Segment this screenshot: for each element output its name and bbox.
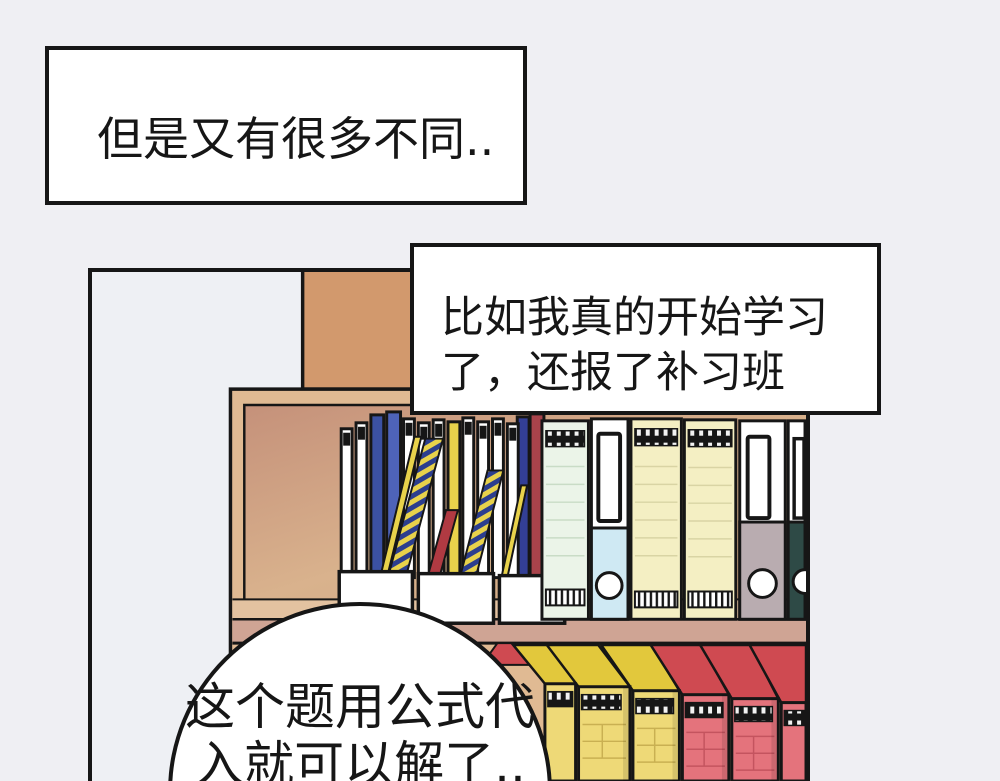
speech-box-line-1: 比如我真的开始学习	[441, 291, 877, 346]
speech-bubble-line-2: 入就可以解了..	[172, 736, 548, 781]
speech-bubble-line-1: 这个题用公式代	[172, 678, 548, 736]
speech-box: 比如我真的开始学习 了，还报了补习班	[410, 243, 881, 415]
comic-page: { "comic": { "narration_box_1": { "text"…	[0, 0, 1000, 781]
barcode	[635, 591, 678, 607]
thin-books-group	[339, 412, 564, 623]
finger-hole	[793, 570, 806, 594]
barcode	[688, 591, 732, 607]
binder-pale-yellow-a	[631, 419, 681, 619]
binder-label	[635, 429, 678, 446]
finger-hole	[596, 573, 622, 599]
barcode	[546, 590, 585, 606]
binder-label	[546, 431, 585, 447]
narration-box: 但是又有很多不同..	[45, 46, 527, 205]
binder-front-red-3	[781, 703, 806, 781]
binder-pale-yellow-b	[684, 420, 735, 619]
binder-front-yellow-2	[579, 687, 630, 781]
binder-mint	[542, 421, 588, 619]
speech-box-line-2: 了，还报了补习班	[441, 346, 877, 401]
binder-label	[688, 430, 732, 447]
narration-text: 但是又有很多不同..	[97, 116, 523, 162]
binder-teal	[788, 421, 806, 619]
binder-front-yellow-3	[633, 691, 679, 781]
binder-white-blue	[591, 419, 628, 619]
finger-hole	[749, 570, 777, 598]
binders-top-row	[542, 419, 806, 619]
binder-front-red-2	[732, 699, 778, 781]
binder-mauve	[740, 421, 785, 619]
binder-front-red-1	[682, 695, 728, 781]
